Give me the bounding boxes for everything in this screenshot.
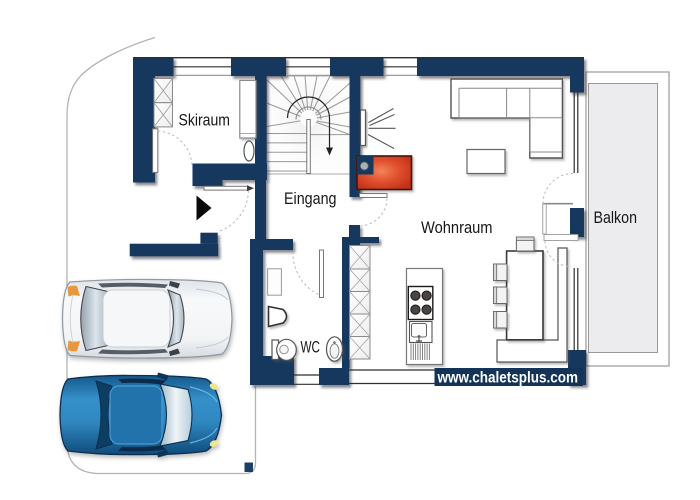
svg-text:Eingang: Eingang [284,189,337,208]
svg-text:www.chaletsplus.com: www.chaletsplus.com [437,369,578,386]
svg-text:WC: WC [301,338,321,357]
svg-text:Skiraum: Skiraum [179,111,231,130]
svg-text:Balkon: Balkon [594,208,638,227]
svg-text:Wohnraum: Wohnraum [421,218,493,237]
